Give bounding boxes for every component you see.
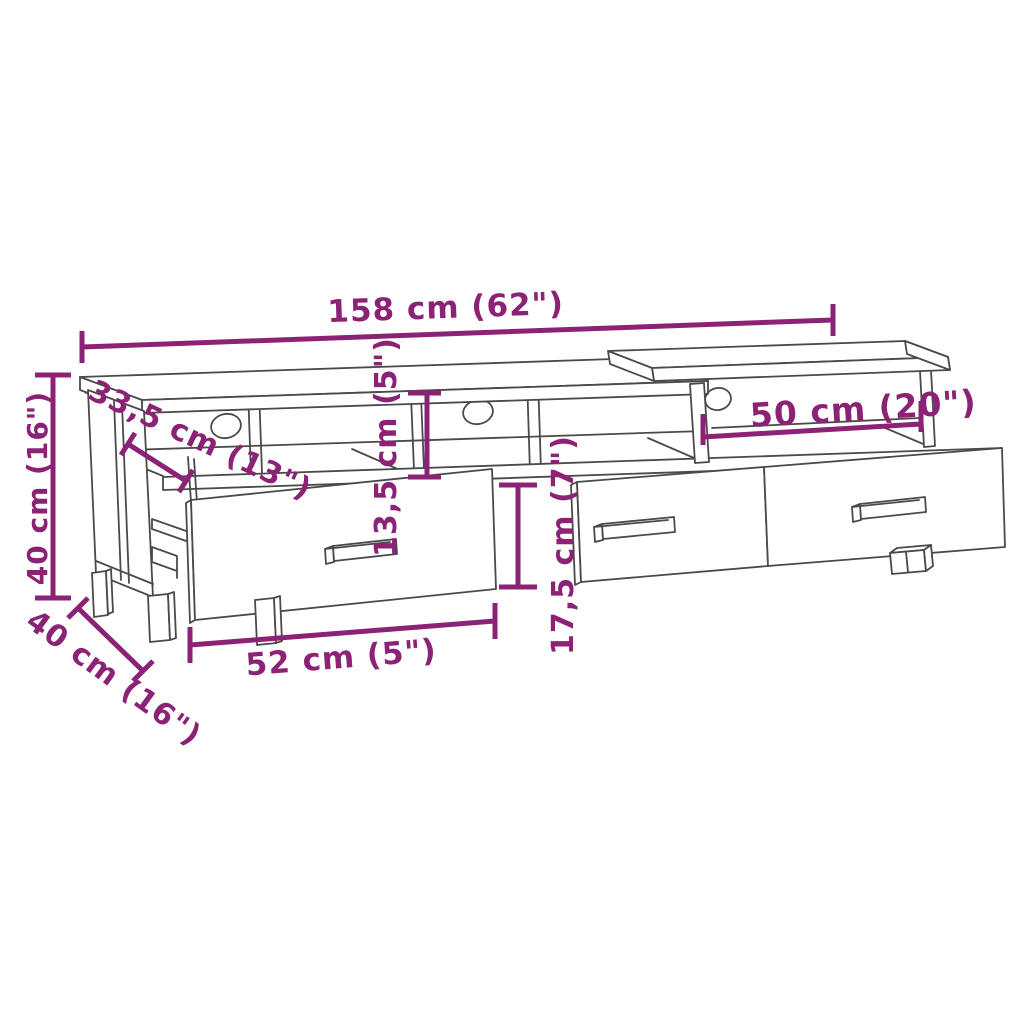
tv-stand-drawing — [80, 341, 1005, 645]
furniture-dimension-diagram: 158 cm (62") 40 cm (16") 33,5 cm (13") 1… — [0, 0, 1024, 1024]
dim-drawer-front-height-line — [499, 485, 537, 587]
dim-label-shelf-opening-height: 13,5 cm (5") — [369, 337, 404, 557]
front-left-leg — [148, 594, 170, 642]
dim-total-height: 40 cm (16") — [21, 375, 71, 598]
compartment-divider — [411, 396, 424, 470]
dim-label-drawer-front-height: 17,5 cm (7") — [546, 435, 581, 655]
right-foot-side — [924, 545, 933, 571]
dim-label-total-depth: 40 cm (16") — [19, 603, 207, 753]
diagram-page: 158 cm (62") 40 cm (16") 33,5 cm (13") 1… — [0, 0, 1024, 1024]
back-left-leg-side — [106, 569, 113, 614]
dim-total-depth: 40 cm (16") — [19, 598, 207, 753]
drawer-rail-upper — [152, 519, 189, 542]
dim-label-total-height: 40 cm (16") — [21, 391, 54, 585]
dim-label-total-width: 158 cm (62") — [327, 286, 565, 330]
dim-right-opening-width: 50 cm (20") — [703, 382, 978, 445]
front-left-leg-side — [168, 592, 176, 640]
dim-label-right-opening-width: 50 cm (20") — [749, 382, 978, 435]
drawer-rail-lower — [152, 547, 177, 578]
